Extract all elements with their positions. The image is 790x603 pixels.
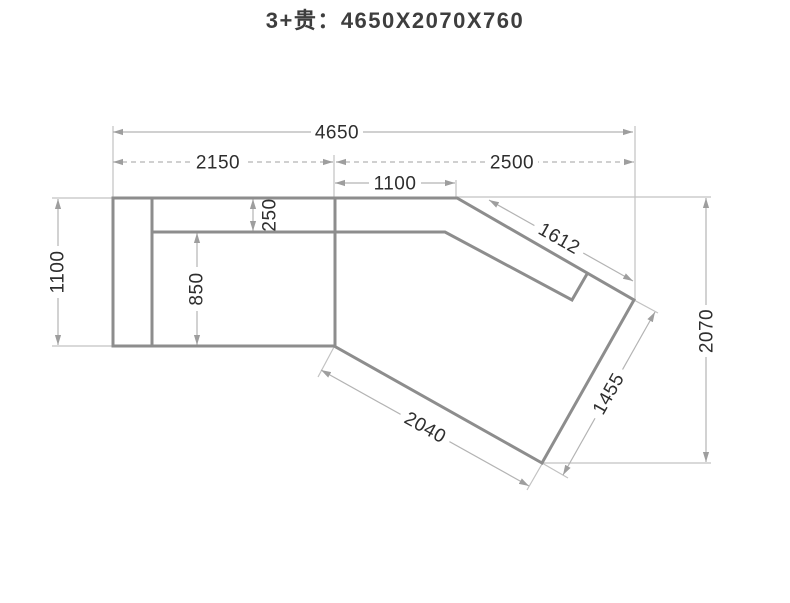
dim-seat-section-width: 2150 [113,153,333,174]
sofa-dimension-drawing: 4650 2150 2500 1100 250 [0,0,790,603]
dim-chaise-section-width: 2500 [336,153,634,174]
dim-seat-depth: 850 [187,233,208,345]
dim-chaise-back-edge-label: 1612 [535,219,584,259]
dim-chaise-back-edge: 1612 [489,200,633,281]
dim-seat-depth-label: 850 [187,272,208,305]
dim-overall-depth: 2070 [697,198,718,462]
dim-chaise-front-edge-label: 2040 [401,408,450,448]
dim-chaise-front-edge: 2040 [321,370,529,486]
dim-total-width: 4650 [113,123,633,144]
dim-backrest-depth-label: 250 [260,198,281,231]
dim-chaise-end-width: 1455 [563,312,655,475]
drawing-canvas: 3+贵：4650X2070X760 [0,0,790,603]
dim-backrest-depth: 250 [253,198,281,231]
dim-sofa-depth-label: 1100 [48,251,69,294]
dim-chaise-end-width-label: 1455 [589,370,629,419]
ext-front-edge-end [527,464,542,490]
dim-total-width-label: 4650 [315,123,359,144]
dim-chaise-section-width-label: 2500 [490,153,534,174]
dim-overall-depth-label: 2070 [697,309,718,353]
dim-chaise-top-edge: 1100 [335,174,455,195]
ext-end-edge-start [634,300,658,313]
dim-seat-section-width-label: 2150 [196,153,240,174]
dim-chaise-top-edge-label: 1100 [374,174,417,195]
ext-end-edge-end [542,463,568,478]
dim-sofa-depth: 1100 [48,199,69,345]
dimension-callouts: 4650 2150 2500 1100 250 [48,123,718,487]
backrest-line [152,232,587,300]
